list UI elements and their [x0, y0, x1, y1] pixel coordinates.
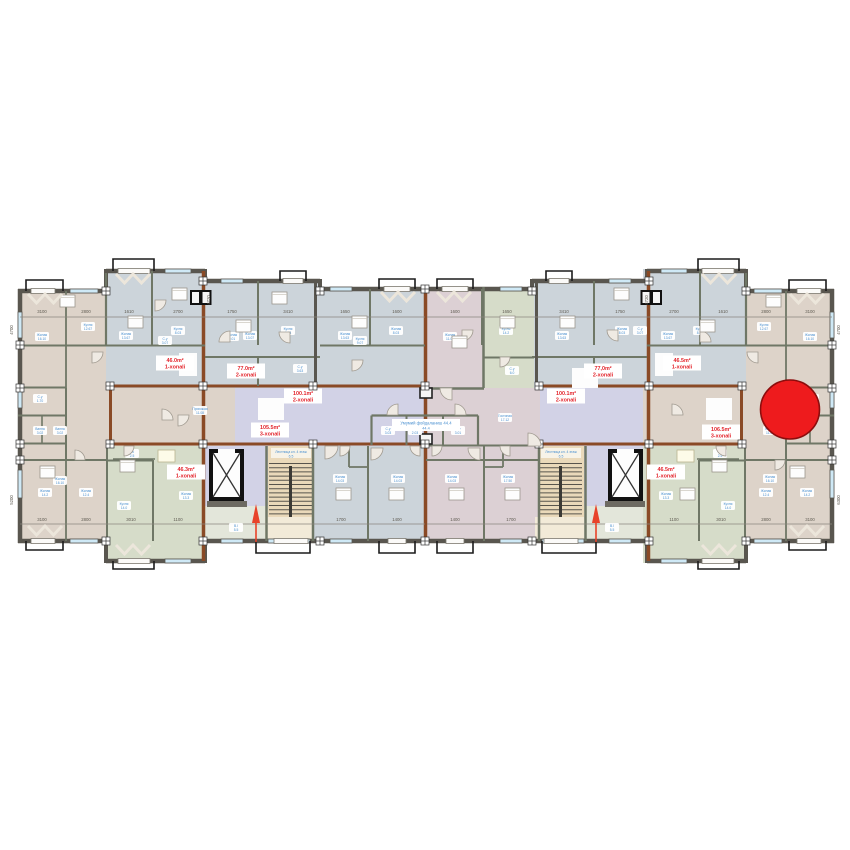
svg-text:3-xonali: 3-xonali	[711, 434, 732, 440]
svg-text:3-xonali: 3-xonali	[260, 432, 281, 438]
svg-text:6.0: 6.0	[510, 371, 515, 375]
svg-text:2700: 2700	[669, 309, 679, 314]
svg-text:16.10: 16.10	[56, 481, 64, 485]
svg-text:2800: 2800	[761, 517, 771, 522]
svg-text:4720: 4720	[644, 295, 649, 305]
svg-text:1-xonali: 1-xonali	[672, 365, 693, 371]
svg-text:8.03: 8.03	[619, 331, 626, 335]
svg-text:12.4: 12.4	[83, 493, 90, 497]
svg-text:17.50: 17.50	[504, 479, 512, 483]
svg-text:17.12: 17.12	[501, 418, 509, 422]
svg-text:3010: 3010	[716, 517, 726, 522]
svg-text:2700: 2700	[173, 309, 183, 314]
svg-text:1750: 1750	[615, 309, 625, 314]
svg-text:3.02: 3.02	[37, 431, 44, 435]
svg-text:46.5m²: 46.5m²	[657, 467, 674, 473]
svg-text:3010: 3010	[126, 517, 136, 522]
svg-text:1400: 1400	[392, 517, 402, 522]
svg-text:16.10: 16.10	[38, 337, 46, 341]
svg-text:1100: 1100	[669, 517, 679, 522]
svg-text:3.02: 3.02	[57, 431, 64, 435]
svg-text:3.07: 3.07	[162, 341, 169, 345]
svg-text:4700: 4700	[9, 325, 14, 335]
svg-text:13.67: 13.67	[122, 336, 130, 340]
svg-text:8.03: 8.03	[175, 331, 182, 335]
svg-text:1650: 1650	[340, 309, 350, 314]
svg-text:11.08: 11.08	[196, 411, 204, 415]
svg-text:106.5m²: 106.5m²	[711, 427, 731, 433]
svg-text:2800: 2800	[81, 309, 91, 314]
svg-text:77.0m²: 77.0m²	[237, 366, 254, 372]
svg-text:5200: 5200	[9, 495, 14, 505]
svg-text:2-xonali: 2-xonali	[593, 373, 614, 379]
svg-text:6.5: 6.5	[289, 454, 294, 458]
svg-text:3.63: 3.63	[297, 369, 304, 373]
svg-text:46.5m²: 46.5m²	[673, 358, 690, 364]
svg-text:14.2: 14.2	[42, 493, 49, 497]
svg-text:100.1m²: 100.1m²	[556, 391, 576, 397]
svg-text:12.67: 12.67	[760, 327, 768, 331]
svg-text:1-xonali: 1-xonali	[656, 474, 677, 480]
svg-text:16.10: 16.10	[766, 479, 774, 483]
svg-text:2-xonali: 2-xonali	[556, 398, 577, 404]
svg-text:77,0m²: 77,0m²	[594, 366, 611, 372]
svg-text:8.03: 8.03	[393, 331, 400, 335]
svg-text:3.07: 3.07	[637, 331, 644, 335]
svg-text:13.07: 13.07	[246, 336, 254, 340]
svg-text:44.4: 44.4	[422, 427, 429, 431]
svg-text:1-xonali: 1-xonali	[176, 474, 197, 480]
svg-text:1100: 1100	[173, 517, 183, 522]
svg-text:1400: 1400	[450, 517, 460, 522]
svg-text:9.07: 9.07	[357, 341, 364, 345]
svg-text:2-xonali: 2-xonali	[293, 398, 314, 404]
svg-text:13.3: 13.3	[663, 496, 670, 500]
svg-text:1600: 1600	[392, 309, 402, 314]
svg-text:6300: 6300	[836, 495, 841, 505]
svg-text:1600: 1600	[450, 309, 460, 314]
svg-text:3100: 3100	[805, 517, 815, 522]
svg-text:2800: 2800	[761, 309, 771, 314]
svg-text:2.5: 2.5	[130, 454, 135, 458]
svg-text:14.0: 14.0	[725, 506, 732, 510]
svg-text:3.03: 3.03	[385, 431, 392, 435]
svg-text:6.5: 6.5	[559, 454, 564, 458]
svg-text:3100: 3100	[37, 309, 47, 314]
svg-text:13.3: 13.3	[183, 496, 190, 500]
svg-text:1700: 1700	[506, 517, 516, 522]
svg-text:14.03: 14.03	[336, 479, 344, 483]
svg-text:13.67: 13.67	[664, 336, 672, 340]
svg-text:13.63: 13.63	[341, 336, 349, 340]
svg-text:3100: 3100	[805, 309, 815, 314]
svg-text:2-xonali: 2-xonali	[236, 373, 257, 379]
svg-text:4720: 4720	[206, 295, 211, 305]
svg-text:1.70: 1.70	[37, 399, 44, 403]
svg-text:2800: 2800	[81, 517, 91, 522]
svg-text:14.03: 14.03	[448, 479, 456, 483]
svg-text:100.1m²: 100.1m²	[293, 391, 313, 397]
svg-text:4700: 4700	[836, 325, 841, 335]
svg-text:5.5: 5.5	[234, 528, 239, 532]
svg-text:Лестница кл. 4 этаж: Лестница кл. 4 этаж	[545, 450, 577, 454]
svg-text:Умумий фойдаланиш 44.4: Умумий фойдаланиш 44.4	[400, 421, 452, 426]
svg-text:14.03: 14.03	[394, 479, 402, 483]
svg-text:13.63: 13.63	[558, 336, 566, 340]
svg-text:16.10: 16.10	[806, 337, 814, 341]
svg-text:3100: 3100	[37, 517, 47, 522]
svg-text:1650: 1650	[502, 309, 512, 314]
svg-text:46.3m²: 46.3m²	[177, 467, 194, 473]
svg-text:1610: 1610	[124, 309, 134, 314]
svg-text:1750: 1750	[227, 309, 237, 314]
svg-text:105.5m²: 105.5m²	[260, 425, 280, 431]
svg-text:14.0: 14.0	[121, 506, 128, 510]
svg-text:12.4: 12.4	[763, 493, 770, 497]
svg-text:1700: 1700	[336, 517, 346, 522]
svg-text:2.03: 2.03	[412, 431, 419, 435]
svg-text:3410: 3410	[283, 309, 293, 314]
svg-text:1-xonali: 1-xonali	[165, 365, 186, 371]
svg-text:46.0m²: 46.0m²	[166, 358, 183, 364]
svg-text:14.2: 14.2	[804, 493, 811, 497]
svg-text:14.2: 14.2	[503, 331, 510, 335]
svg-text:1610: 1610	[718, 309, 728, 314]
svg-text:3.01: 3.01	[455, 431, 462, 435]
svg-text:3410: 3410	[559, 309, 569, 314]
svg-text:Лестница кл. 4 этаж: Лестница кл. 4 этаж	[275, 450, 307, 454]
svg-text:12.67: 12.67	[84, 327, 92, 331]
svg-text:5.5: 5.5	[610, 528, 615, 532]
